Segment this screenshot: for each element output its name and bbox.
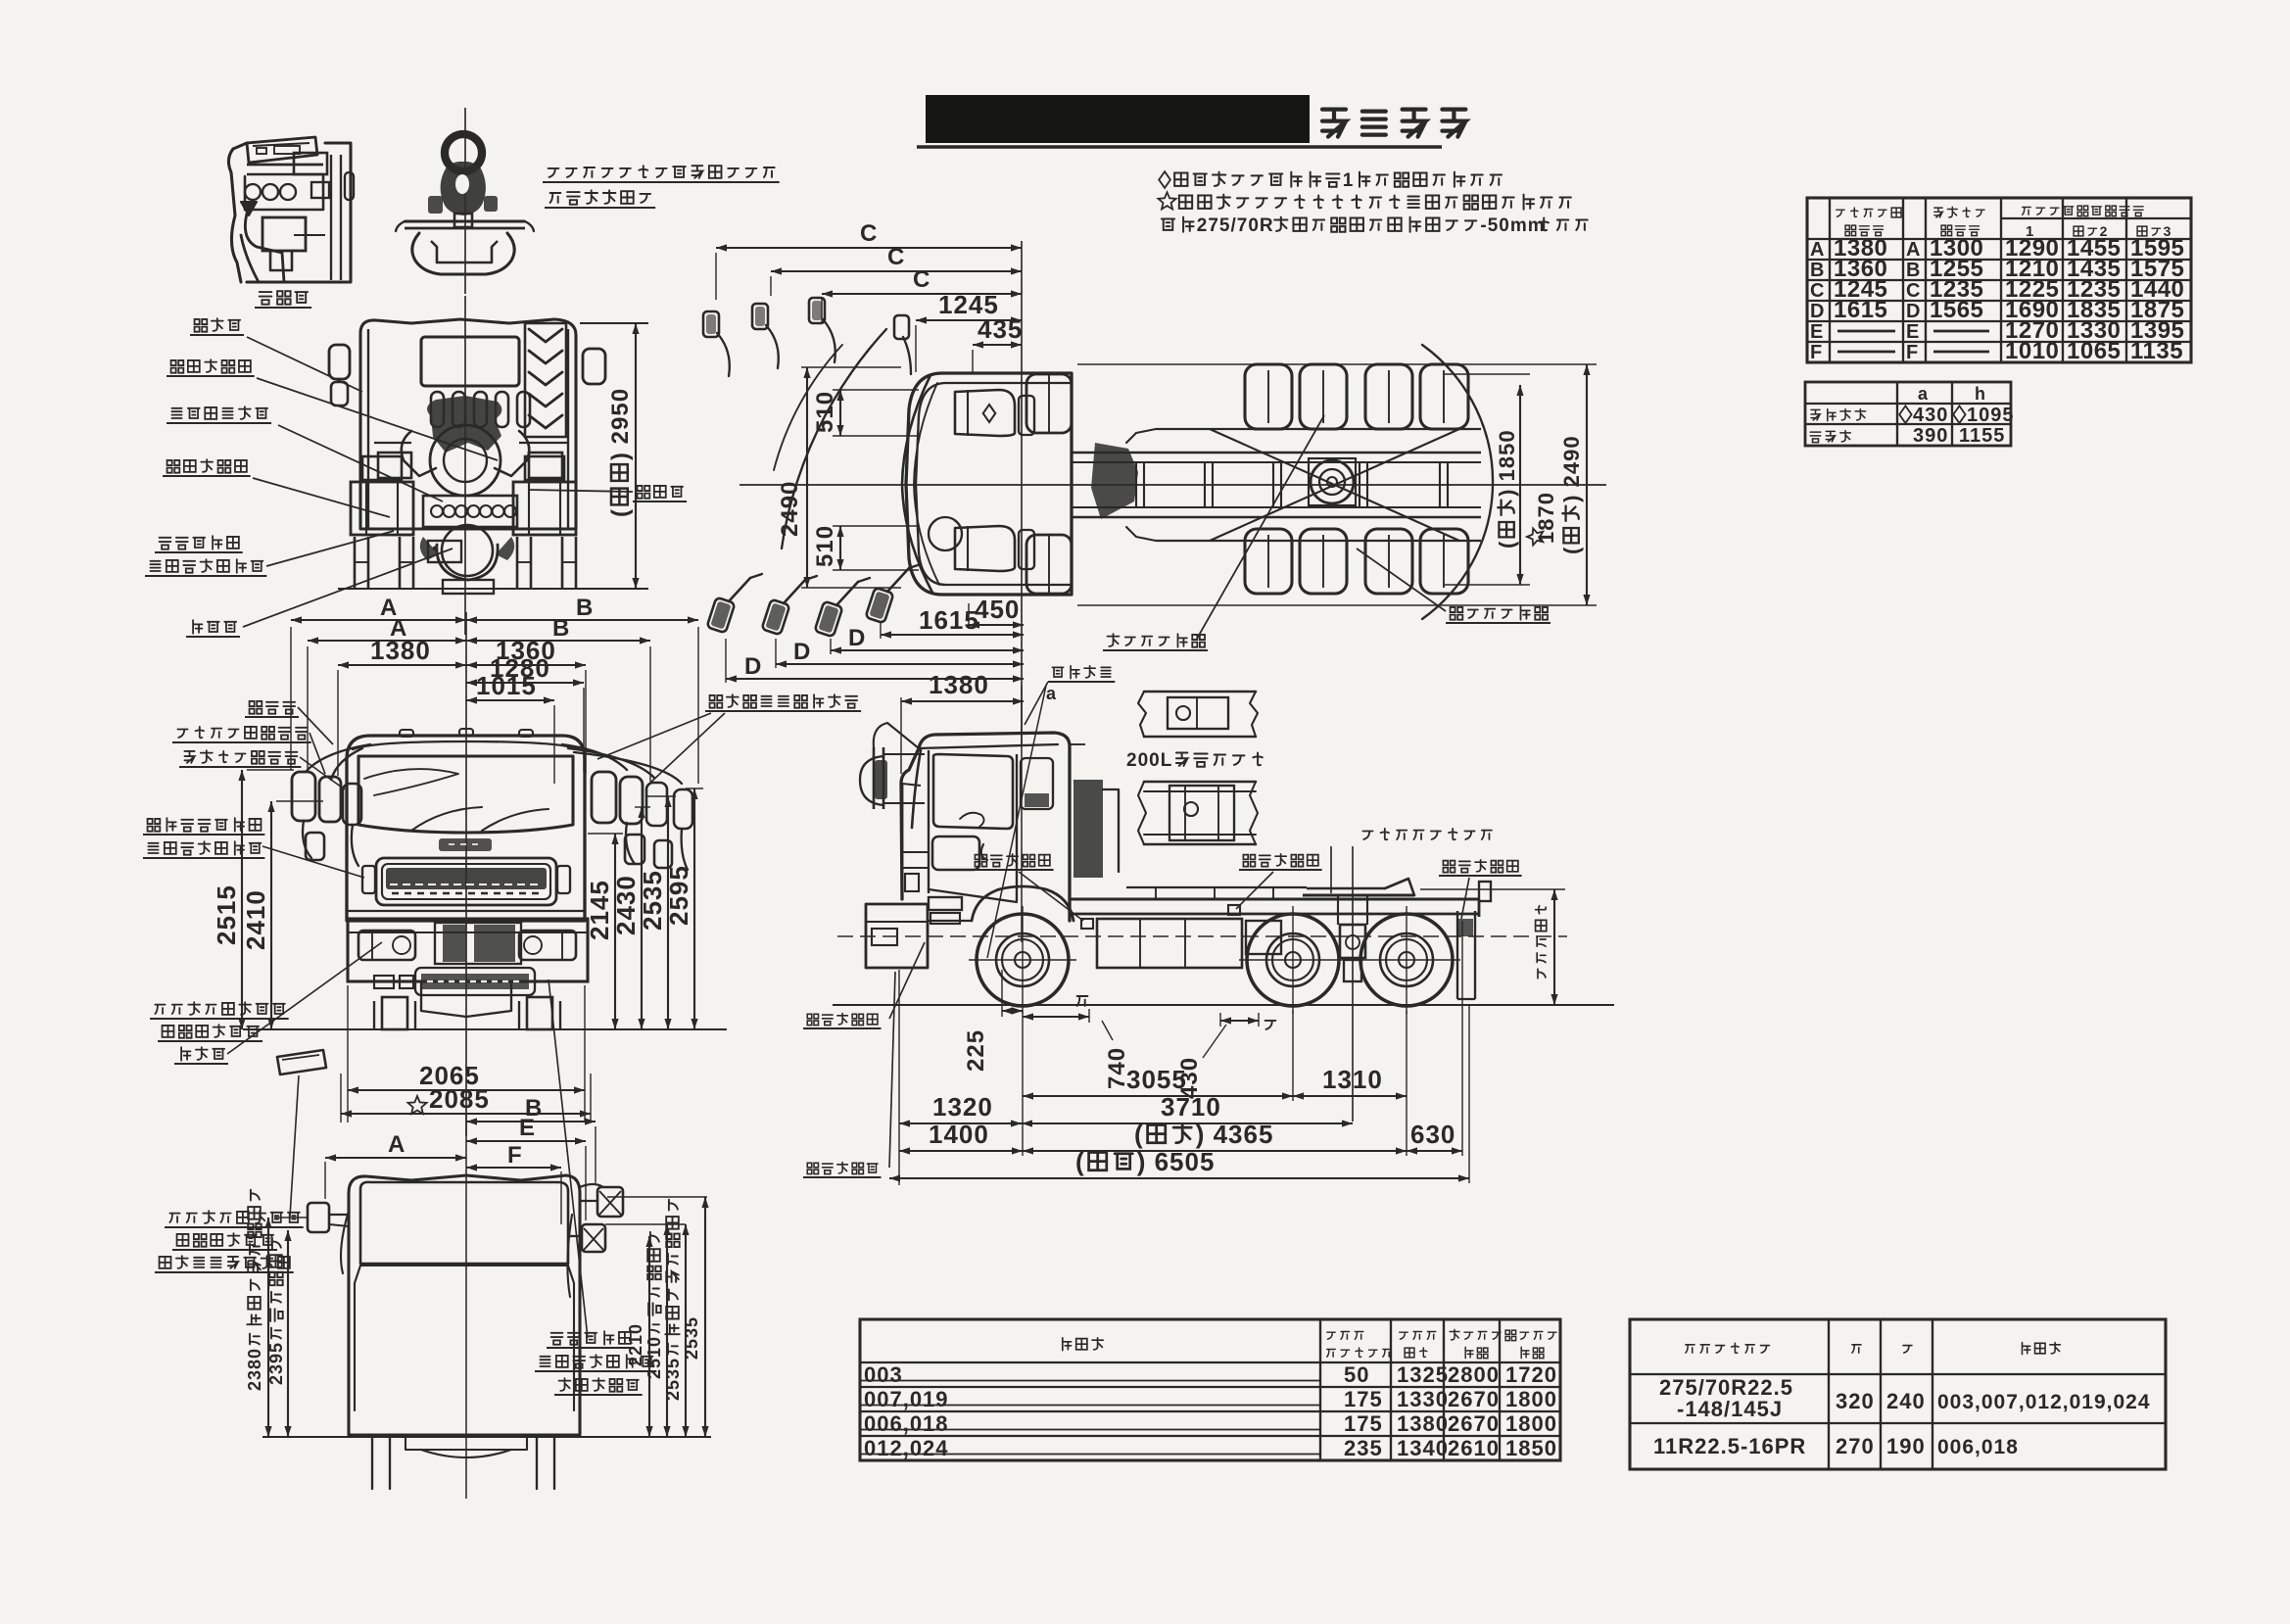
svg-text:F: F [507,1142,523,1169]
svg-text:C: C [1810,280,1825,302]
svg-text:D: D [1906,301,1921,322]
svg-text:006,018: 006,018 [864,1411,949,1436]
svg-text:A: A [1906,239,1921,261]
svg-text:2535: 2535 [663,1358,683,1401]
svg-text:A: A [1810,239,1825,261]
svg-text:2210: 2210 [626,1323,645,1366]
svg-text:1380: 1380 [929,670,989,699]
svg-text:007,019: 007,019 [864,1387,949,1411]
svg-text:) 2490: ) 2490 [1559,435,1584,502]
svg-text:11R22.5-16PR: 11R22.5-16PR [1653,1434,1806,1458]
svg-text:D: D [793,639,811,665]
svg-text:-148/145J: -148/145J [1677,1397,1783,1421]
svg-text:1800: 1800 [1505,1387,1557,1411]
svg-text:2595: 2595 [664,865,693,926]
svg-text:2535: 2535 [682,1316,701,1360]
svg-text:B: B [576,595,594,621]
svg-text:C: C [913,266,930,293]
svg-text:) 4365: ) 4365 [1196,1120,1274,1149]
svg-text:270: 270 [1836,1434,1875,1458]
svg-text:1850: 1850 [1505,1436,1557,1460]
svg-text:390: 390 [1913,425,1948,447]
svg-text:a: a [1918,384,1929,404]
svg-text:1800: 1800 [1505,1411,1557,1436]
svg-text:510: 510 [812,525,838,567]
svg-text:2535: 2535 [638,870,667,931]
svg-text:1330: 1330 [1397,1387,1449,1411]
svg-text:F: F [1906,342,1919,363]
svg-text:1870: 1870 [1534,492,1558,544]
svg-text:) 6505: ) 6505 [1137,1147,1216,1176]
svg-text:200L: 200L [1126,750,1172,771]
svg-text:2085: 2085 [429,1084,490,1114]
svg-text:2515: 2515 [212,884,241,945]
svg-text:225: 225 [963,1029,989,1072]
svg-text:1380: 1380 [1397,1411,1449,1436]
svg-text:1720: 1720 [1505,1362,1557,1387]
svg-text:B: B [1906,260,1921,281]
svg-text:C: C [860,220,878,247]
svg-text:B: B [1810,260,1825,281]
svg-text:1310: 1310 [1322,1065,1383,1094]
svg-text:1010: 1010 [2005,338,2059,364]
svg-text:2800: 2800 [1448,1362,1500,1387]
svg-text:(: ( [1134,1120,1144,1149]
svg-text:1015: 1015 [476,671,537,700]
svg-text:50: 50 [1344,1362,1369,1387]
svg-text:450: 450 [975,595,1020,624]
svg-text:190: 190 [1886,1434,1926,1458]
svg-text:A: A [388,1131,406,1158]
svg-text:1565: 1565 [1930,297,1983,323]
svg-text:2410: 2410 [241,889,270,950]
svg-text:1400: 1400 [929,1120,989,1149]
svg-text:D: D [1810,301,1825,322]
svg-text:(: ( [1559,547,1584,554]
svg-text:320: 320 [1836,1389,1875,1413]
svg-text:175: 175 [1344,1387,1383,1411]
svg-text:2610: 2610 [1448,1436,1500,1460]
svg-text:2395: 2395 [266,1342,286,1385]
svg-text:C: C [1906,280,1921,302]
svg-text:2430: 2430 [611,875,641,935]
svg-text:1615: 1615 [919,605,979,635]
svg-text:C: C [887,244,905,270]
svg-text:) 2950: ) 2950 [607,388,634,460]
svg-text:1: 1 [1343,170,1355,191]
svg-text:(: ( [607,508,634,517]
svg-text:E: E [519,1115,536,1141]
svg-text:240: 240 [1886,1389,1926,1413]
svg-text:1380: 1380 [370,636,431,665]
svg-text:006,018: 006,018 [1937,1436,2019,1458]
svg-text:175: 175 [1344,1411,1383,1436]
svg-text:1065: 1065 [2067,338,2121,364]
svg-text:2670: 2670 [1448,1387,1500,1411]
svg-text:3055: 3055 [1126,1065,1187,1094]
svg-text:1320: 1320 [932,1092,993,1122]
svg-text:(: ( [1075,1147,1085,1176]
svg-text:F: F [1810,342,1823,363]
svg-text:1340: 1340 [1397,1436,1449,1460]
svg-text:D: D [744,653,762,680]
svg-text:1325: 1325 [1397,1362,1449,1387]
svg-text:630: 630 [1410,1120,1455,1149]
svg-text:E: E [1906,321,1920,343]
svg-text:1135: 1135 [2130,338,2183,364]
svg-text:1615: 1615 [1834,297,1887,323]
svg-text:1095: 1095 [1967,405,2015,426]
svg-text:235: 235 [1344,1436,1383,1460]
svg-text:003,007,012,019,024: 003,007,012,019,024 [1937,1391,2151,1413]
svg-text:-50mm: -50mm [1480,215,1545,236]
svg-text:003: 003 [864,1362,903,1387]
svg-text:a: a [1046,684,1057,703]
svg-text:435: 435 [978,314,1023,344]
svg-text:2490: 2490 [777,481,803,537]
svg-text:) 1850: ) 1850 [1495,429,1519,496]
svg-text:2670: 2670 [1448,1411,1500,1436]
svg-text:(: ( [1495,541,1519,549]
svg-text:2145: 2145 [585,880,614,940]
svg-text:430: 430 [1913,405,1948,426]
svg-text:275/70R: 275/70R [1197,215,1274,236]
svg-text:012,024: 012,024 [864,1436,949,1460]
svg-text:E: E [1810,321,1824,343]
svg-text:1155: 1155 [1959,425,2005,447]
svg-text:510: 510 [812,391,838,433]
svg-text:3710: 3710 [1161,1092,1221,1122]
svg-text:h: h [1975,384,1986,404]
svg-text:2510: 2510 [644,1336,664,1379]
svg-text:2380: 2380 [245,1348,264,1391]
svg-text:D: D [848,625,866,651]
